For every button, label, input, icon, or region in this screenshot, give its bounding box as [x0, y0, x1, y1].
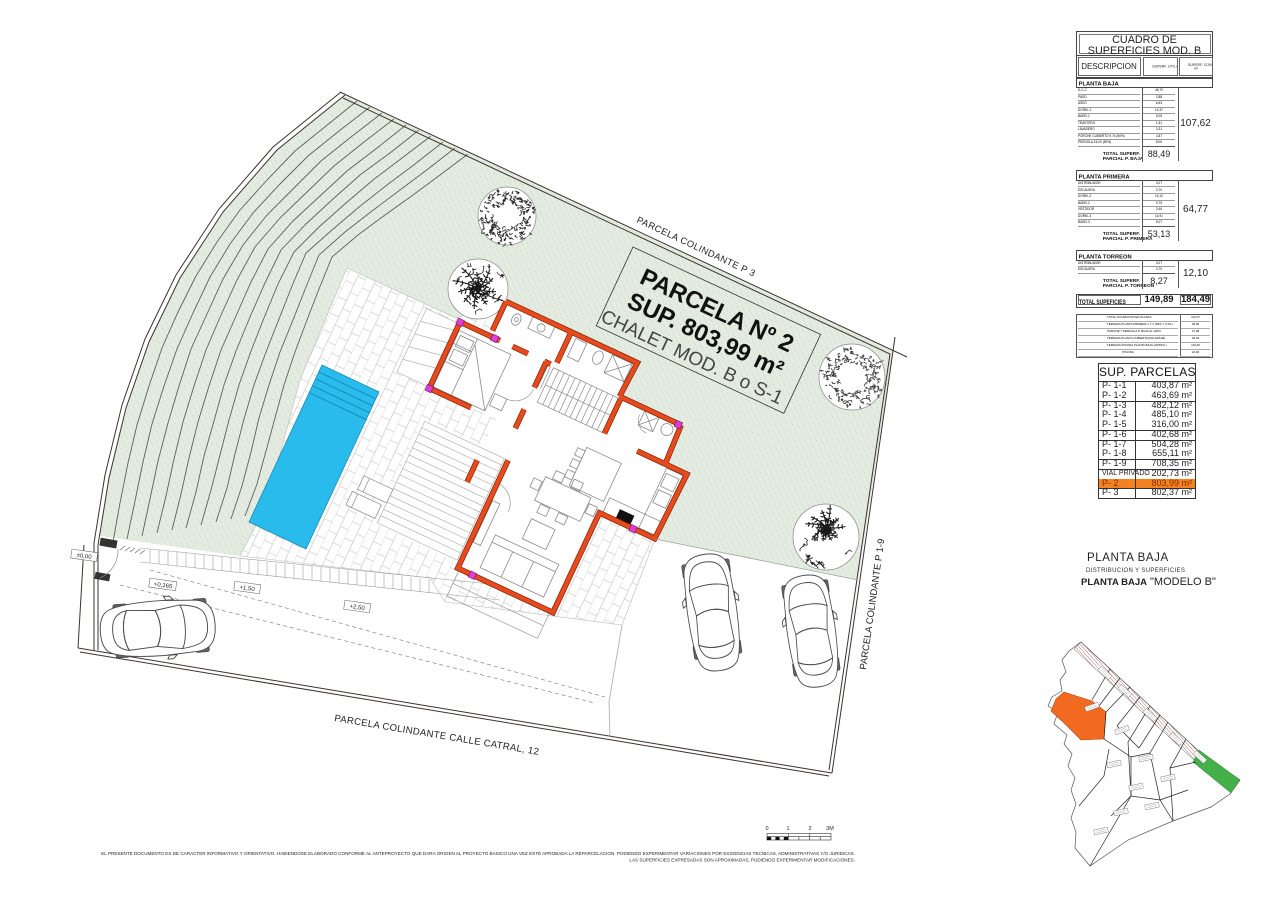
svg-text:EL PRESENTE DOCUMENTO ES DE CA: EL PRESENTE DOCUMENTO ES DE CARACTER INF…	[101, 850, 855, 856]
svg-text:3M: 3M	[826, 826, 834, 832]
svg-text:LAS SUPERFICIES EXPRESADAS SON: LAS SUPERFICIES EXPRESADAS SON APROXIMAD…	[629, 858, 855, 863]
svg-text:2: 2	[808, 826, 811, 832]
svg-text:1: 1	[786, 826, 789, 832]
svg-text:0: 0	[765, 826, 768, 832]
svg-text:±0,00: ±0,00	[76, 553, 92, 561]
svg-text:PARCELA COLINDANTE P 1-9: PARCELA COLINDANTE P 1-9	[858, 538, 887, 670]
